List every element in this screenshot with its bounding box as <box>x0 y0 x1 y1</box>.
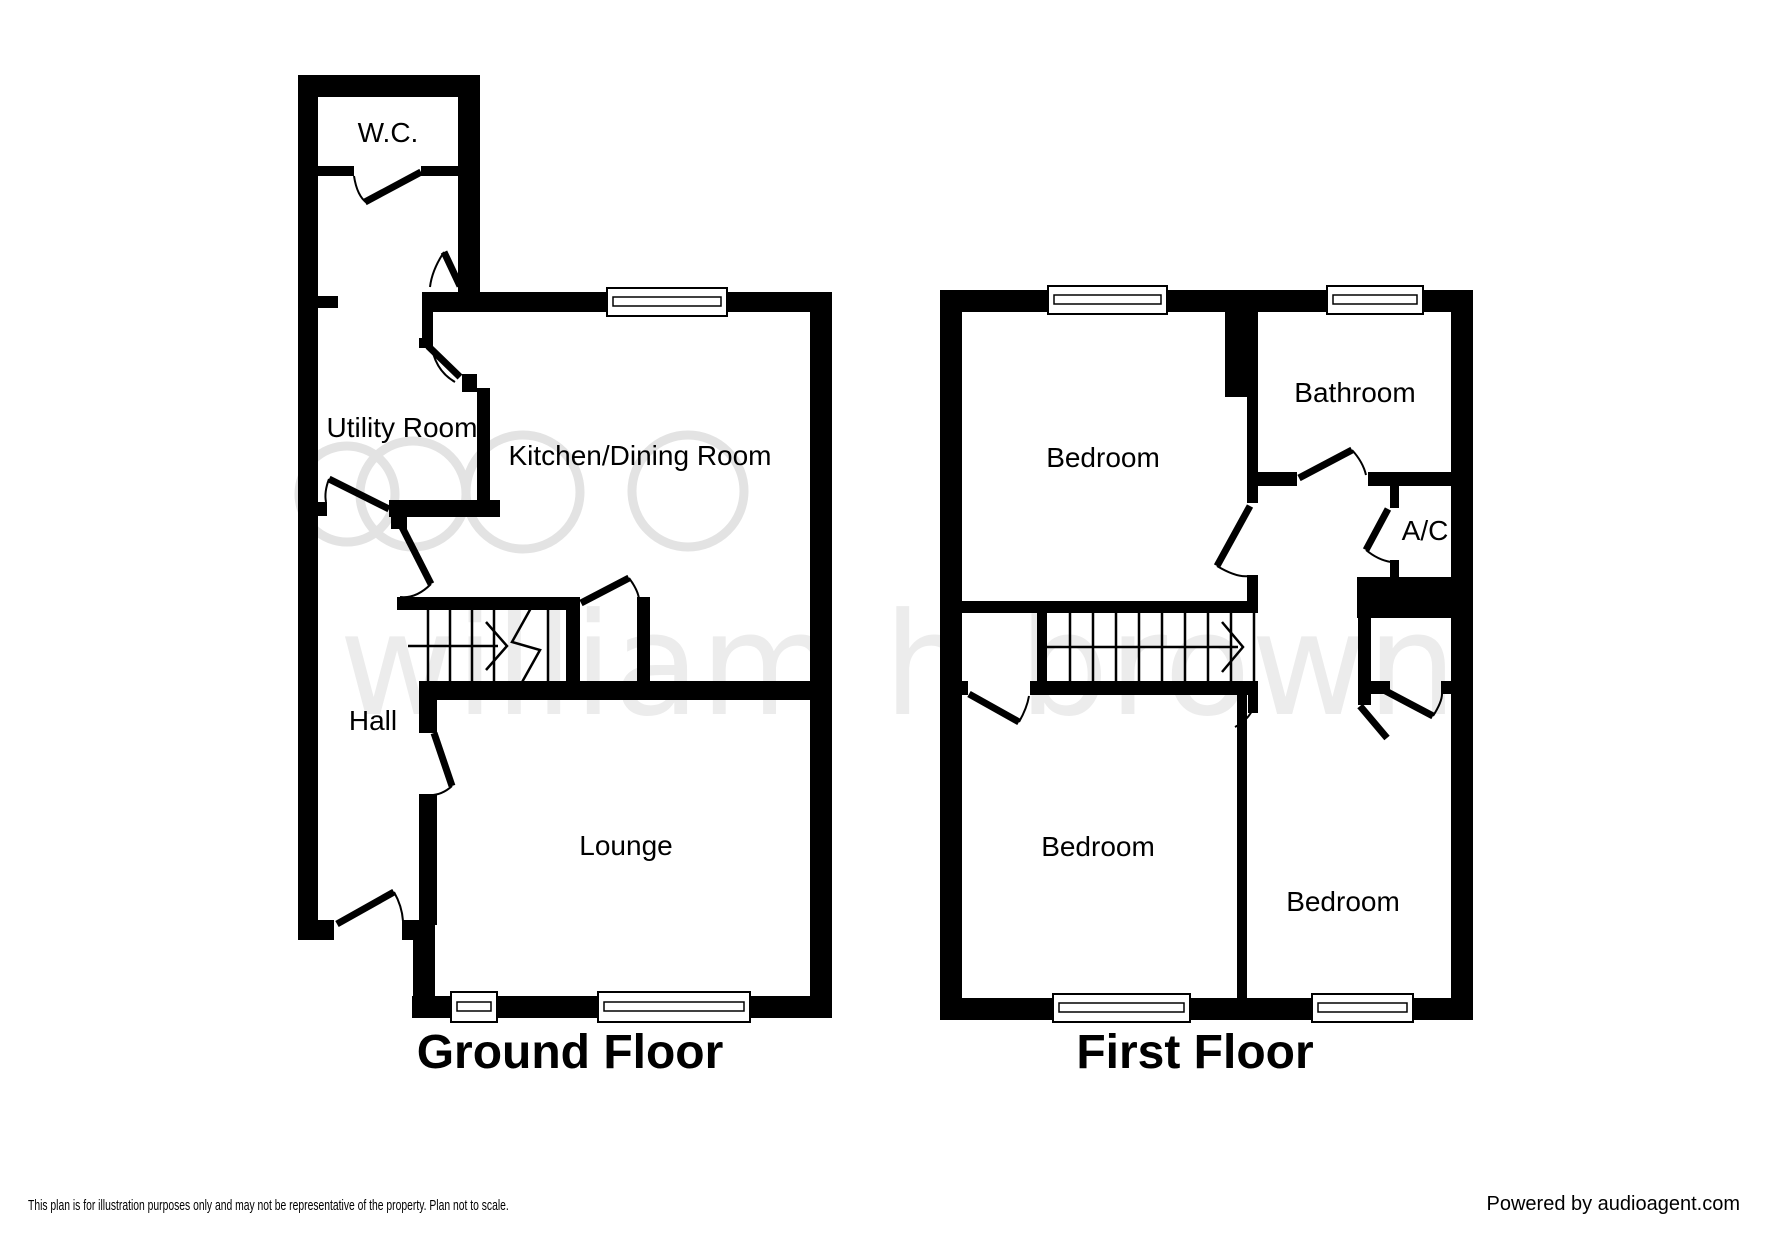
door <box>1366 509 1391 562</box>
room-label-bathroom: Bathroom <box>1294 377 1415 408</box>
ground-floor-walls <box>298 75 832 1018</box>
wall <box>1368 472 1451 486</box>
door-leaf <box>337 892 394 924</box>
window-glass <box>1333 295 1417 304</box>
wall <box>477 388 490 517</box>
wall <box>419 681 810 700</box>
wall <box>318 502 327 516</box>
window-glass <box>604 1002 744 1011</box>
wall <box>298 75 480 97</box>
wall <box>1413 998 1473 1020</box>
door-leaf <box>1366 509 1388 550</box>
door <box>430 252 460 287</box>
front-door <box>337 892 403 924</box>
wall <box>1390 560 1399 577</box>
wall <box>637 597 650 682</box>
ground-floor-plan: W.C. Utility Room Kitchen/Dining Room Ha… <box>298 75 832 1079</box>
wall <box>1167 290 1327 312</box>
floorplan-drawing: william h brown <box>0 0 1771 1240</box>
logo-ring-icon <box>360 441 466 547</box>
room-label-bedroom-back: Bedroom <box>1041 831 1155 862</box>
window <box>607 288 727 316</box>
wall <box>940 998 1053 1020</box>
door-arc <box>1217 566 1249 576</box>
wall <box>1358 577 1371 705</box>
window <box>1048 286 1167 314</box>
wall <box>810 292 832 1018</box>
wall <box>566 597 580 682</box>
wall <box>1441 681 1451 694</box>
wall <box>1237 695 1247 998</box>
wall <box>1190 998 1312 1020</box>
first-floor-title: First Floor <box>1076 1026 1313 1079</box>
door-arc <box>428 786 452 795</box>
ground-floor-doors <box>325 172 639 924</box>
window <box>451 992 497 1022</box>
door-leaf <box>1299 450 1352 478</box>
wall <box>402 920 435 940</box>
door-arc <box>1366 550 1391 562</box>
door-arc <box>1352 450 1366 475</box>
credit-text: Powered by audioagent.com <box>1487 1193 1741 1216</box>
wall <box>421 166 458 176</box>
room-label-ac: A/C <box>1402 515 1449 546</box>
room-label-bedroom-front: Bedroom <box>1046 442 1160 473</box>
window <box>1312 994 1413 1022</box>
room-label-bedroom-small: Bedroom <box>1286 886 1400 917</box>
window-glass <box>457 1002 491 1011</box>
wall <box>318 296 338 308</box>
wall <box>940 290 1048 312</box>
wall <box>412 996 451 1018</box>
window-glass <box>1059 1003 1184 1012</box>
door <box>1299 450 1366 478</box>
window-glass <box>1318 1003 1407 1012</box>
wall <box>298 75 318 940</box>
door-leaf <box>1217 506 1250 566</box>
wall <box>462 374 477 392</box>
window-glass <box>1054 295 1161 304</box>
wall <box>1451 290 1473 1020</box>
wall <box>1390 486 1399 508</box>
ground-floor-title: Ground Floor <box>417 1026 724 1079</box>
wall <box>1037 613 1047 681</box>
wall <box>1357 577 1451 618</box>
door <box>428 342 460 382</box>
wall <box>962 681 968 695</box>
window <box>1327 286 1423 314</box>
door-arc <box>430 252 444 287</box>
door-leaf <box>444 252 460 286</box>
wall <box>1258 472 1297 486</box>
wall <box>940 290 962 1020</box>
door-leaf <box>402 527 431 584</box>
door <box>354 172 421 203</box>
wall <box>458 75 480 298</box>
room-label-kitchen: Kitchen/Dining Room <box>508 440 771 471</box>
wall <box>298 920 334 940</box>
floorplan-page: william h brown <box>0 0 1771 1240</box>
wall <box>419 794 437 925</box>
room-label-lounge: Lounge <box>579 830 672 861</box>
wall <box>962 601 1258 613</box>
wall <box>422 312 433 342</box>
wall <box>419 698 437 733</box>
window <box>1053 994 1190 1022</box>
disclaimer-text: This plan is for illustration purposes o… <box>28 1197 509 1214</box>
wall <box>1225 312 1258 397</box>
room-label-wc: W.C. <box>358 117 419 148</box>
wall <box>422 292 607 312</box>
wall <box>318 166 354 176</box>
wall <box>389 500 500 517</box>
wall <box>750 996 832 1018</box>
door-arc <box>394 892 403 921</box>
door <box>1217 506 1250 576</box>
wall <box>1247 397 1258 503</box>
window <box>598 992 750 1022</box>
door-arc <box>325 479 329 502</box>
room-label-hall: Hall <box>349 705 397 736</box>
room-label-utility: Utility Room <box>327 412 478 443</box>
window-glass <box>613 297 721 306</box>
wall <box>1030 681 1258 695</box>
wall <box>497 996 598 1018</box>
door-leaf <box>365 172 421 202</box>
wall <box>397 597 580 610</box>
